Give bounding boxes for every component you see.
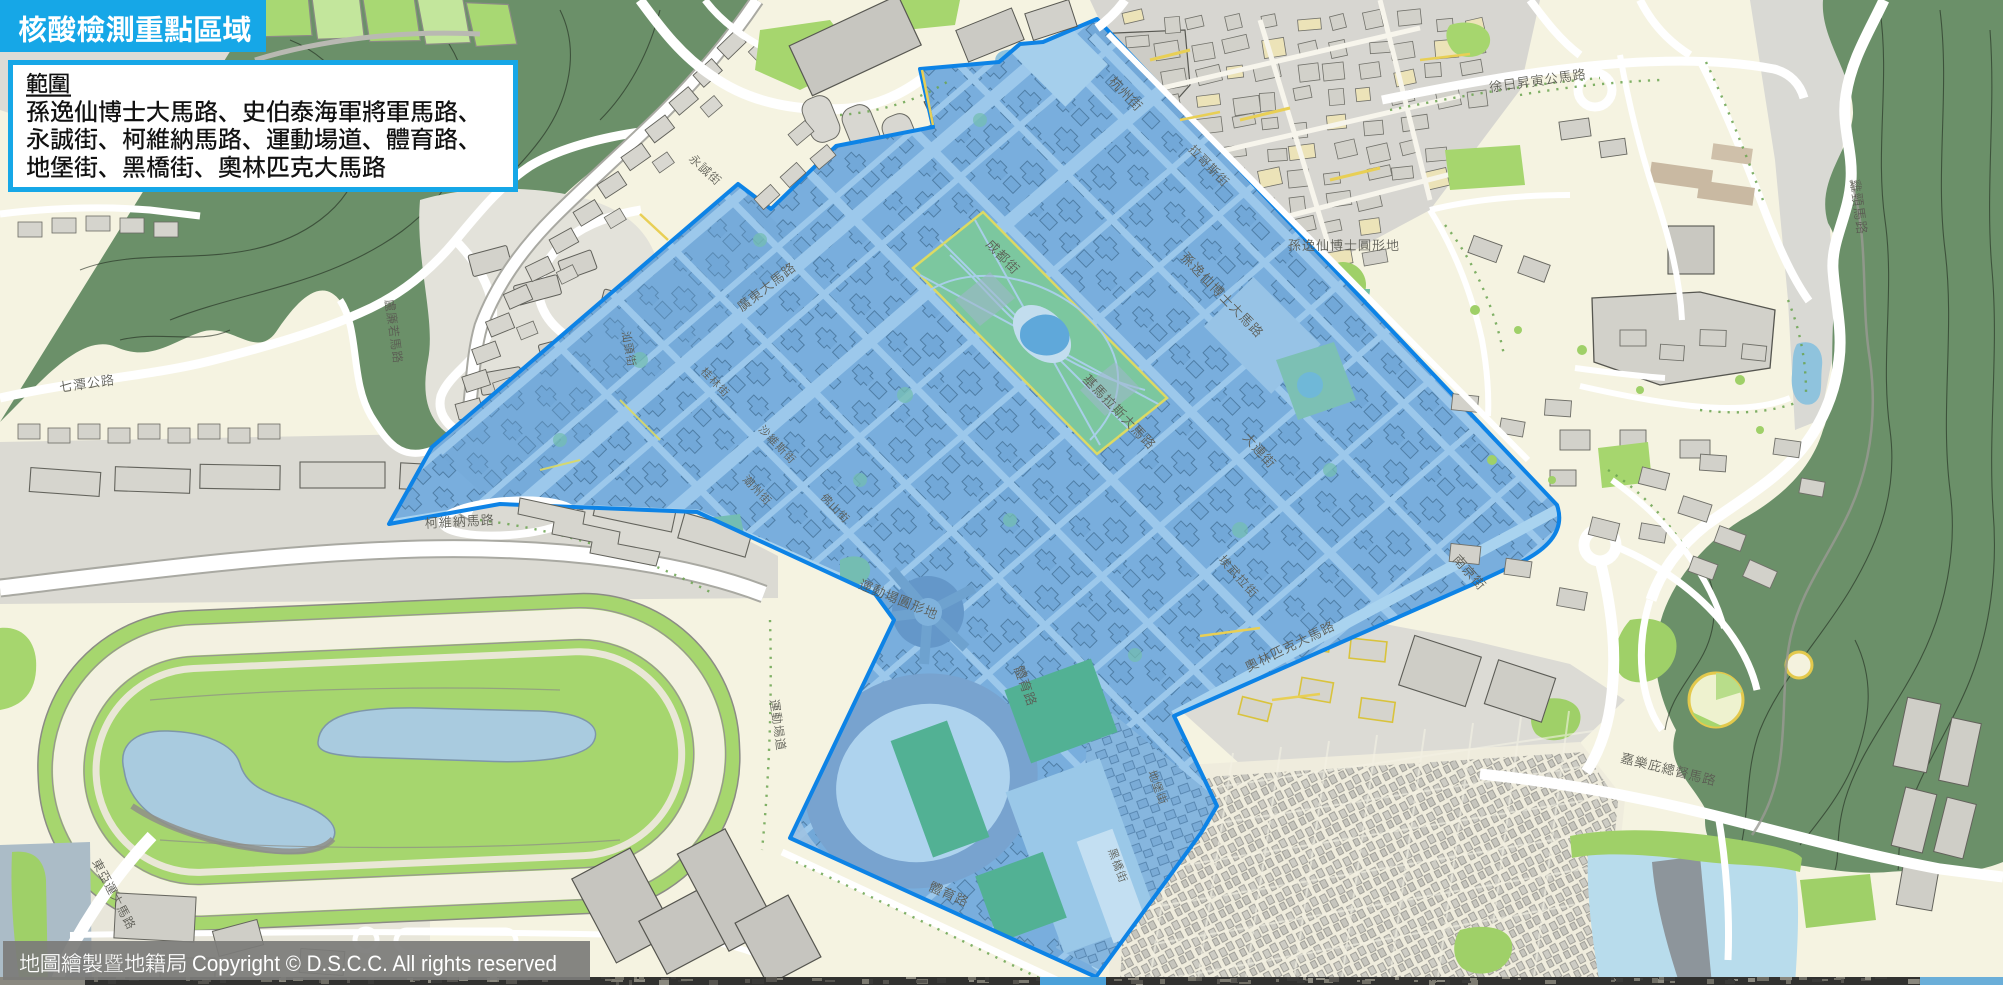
svg-text:Copyright © D.S.C.C. All right: Copyright © D.S.C.C. All rights reserved: [192, 951, 557, 976]
